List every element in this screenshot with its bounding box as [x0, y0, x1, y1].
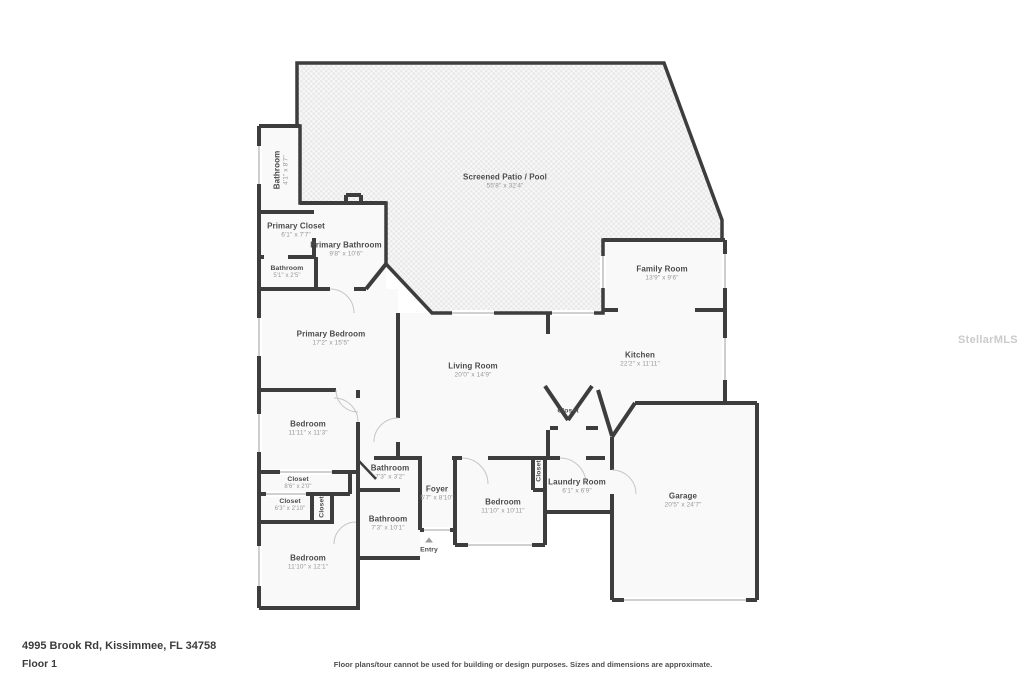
room-name: Entry — [420, 547, 438, 554]
entry-marker-icon — [425, 538, 433, 543]
room-dims: 17'2" x 15'5" — [297, 340, 366, 347]
room-name: Bathroom — [371, 464, 410, 473]
room-name: Primary Bathroom — [310, 241, 381, 250]
room-label-laundry-room: Laundry Room 6'1" x 6'9" — [548, 478, 606, 495]
room-label-bathroom-front: Bathroom 7'3" x 10'1" — [369, 515, 408, 532]
room-name: Bathroom — [273, 151, 282, 190]
room-dims: 7'3" x 10'1" — [369, 525, 408, 532]
room-dims: 9'8" x 10'6" — [310, 251, 381, 258]
room-dims: 11'10" x 12'1" — [288, 564, 328, 571]
room-name: Primary Bedroom — [297, 330, 366, 339]
room-dims: 6'3" x 2'10" — [275, 506, 306, 512]
room-dims: 6'1" x 7'7" — [267, 232, 325, 239]
room-label-foyer: Foyer 5'7" x 8'10" — [420, 485, 453, 502]
room-label-kitchen-closet: Closet — [557, 408, 578, 415]
room-label-closet-4: Closet — [536, 460, 543, 481]
room-label-entry: Entry — [420, 547, 438, 554]
room-label-primary-closet: Primary Closet 6'1" x 7'7" — [267, 222, 325, 239]
room-name: Bedroom — [481, 498, 524, 507]
room-label-bathroom-top-left: Bathroom 4'1" x 8'7" — [273, 151, 290, 190]
room-dims: 5'7" x 8'10" — [420, 495, 453, 502]
floor-label: Floor 1 — [22, 658, 57, 670]
room-name: Laundry Room — [548, 478, 606, 487]
room-name: Bedroom — [288, 554, 328, 563]
room-label-screened-patio-pool: Screened Patio / Pool 55'8" x 32'4" — [463, 173, 547, 190]
room-label-closet-1: Closet 8'6" x 2'0" — [284, 476, 311, 490]
room-label-primary-bathroom: Primary Bathroom 9'8" x 10'6" — [310, 241, 381, 258]
room-label-closet-3: Closet — [319, 496, 326, 517]
room-name: Closet — [284, 476, 311, 483]
room-label-living-room: Living Room 20'0" x 14'9" — [448, 362, 498, 379]
room-label-garage: Garage 20'5" x 24'7" — [665, 492, 702, 509]
room-name: Living Room — [448, 362, 498, 371]
floor-plan: Screened Patio / Pool 55'8" x 32'4" Bath… — [0, 0, 1024, 682]
room-dims: 55'8" x 32'4" — [463, 183, 547, 190]
room-dims: 20'5" x 24'7" — [665, 502, 702, 509]
watermark: StellarMLS — [958, 334, 1018, 346]
room-name: Family Room — [636, 265, 687, 274]
room-name: Closet — [557, 408, 578, 415]
room-name: Bathroom — [271, 265, 304, 272]
room-dims: 13'9" x 9'6" — [636, 275, 687, 282]
room-name: Kitchen — [620, 351, 660, 360]
room-label-bathroom-small: Bathroom 5'1" x 2'5" — [271, 265, 304, 279]
room-name: Garage — [665, 492, 702, 501]
room-dims: 11'11" x 11'3" — [288, 430, 327, 437]
room-name: Closet — [536, 460, 543, 481]
room-name: Primary Closet — [267, 222, 325, 231]
room-label-bedroom-2: Bedroom 11'11" x 11'3" — [288, 420, 327, 437]
room-label-bedroom-3: Bedroom 11'10" x 10'11" — [481, 498, 524, 515]
room-label-closet-2: Closet 6'3" x 2'10" — [275, 498, 306, 512]
address-text: 4995 Brook Rd, Kissimmee, FL 34758 — [22, 640, 216, 652]
room-label-family-room: Family Room 13'9" x 9'6" — [636, 265, 687, 282]
room-dims: 6'1" x 6'9" — [548, 488, 606, 495]
room-name: Bedroom — [288, 420, 327, 429]
room-name: Closet — [275, 498, 306, 505]
room-dims: 4'1" x 8'7" — [283, 151, 290, 190]
room-dims: 5'1" x 2'5" — [271, 273, 304, 279]
floor-plan-walls — [0, 0, 1024, 682]
room-name: Foyer — [420, 485, 453, 494]
room-label-bathroom-hall: Bathroom 7'3" x 3'2" — [371, 464, 410, 481]
room-label-primary-bedroom: Primary Bedroom 17'2" x 15'5" — [297, 330, 366, 347]
room-label-bedroom-4: Bedroom 11'10" x 12'1" — [288, 554, 328, 571]
room-dims: 7'3" x 3'2" — [371, 474, 410, 481]
room-dims: 8'6" x 2'0" — [284, 484, 311, 490]
room-label-kitchen: Kitchen 22'2" x 11'11" — [620, 351, 660, 368]
disclaimer-text: Floor plans/tour cannot be used for buil… — [334, 660, 712, 669]
room-name: Closet — [319, 496, 326, 517]
room-name: Bathroom — [369, 515, 408, 524]
room-name: Screened Patio / Pool — [463, 173, 547, 182]
room-dims: 22'2" x 11'11" — [620, 361, 660, 368]
room-dims: 20'0" x 14'9" — [448, 372, 498, 379]
room-dims: 11'10" x 10'11" — [481, 508, 524, 515]
